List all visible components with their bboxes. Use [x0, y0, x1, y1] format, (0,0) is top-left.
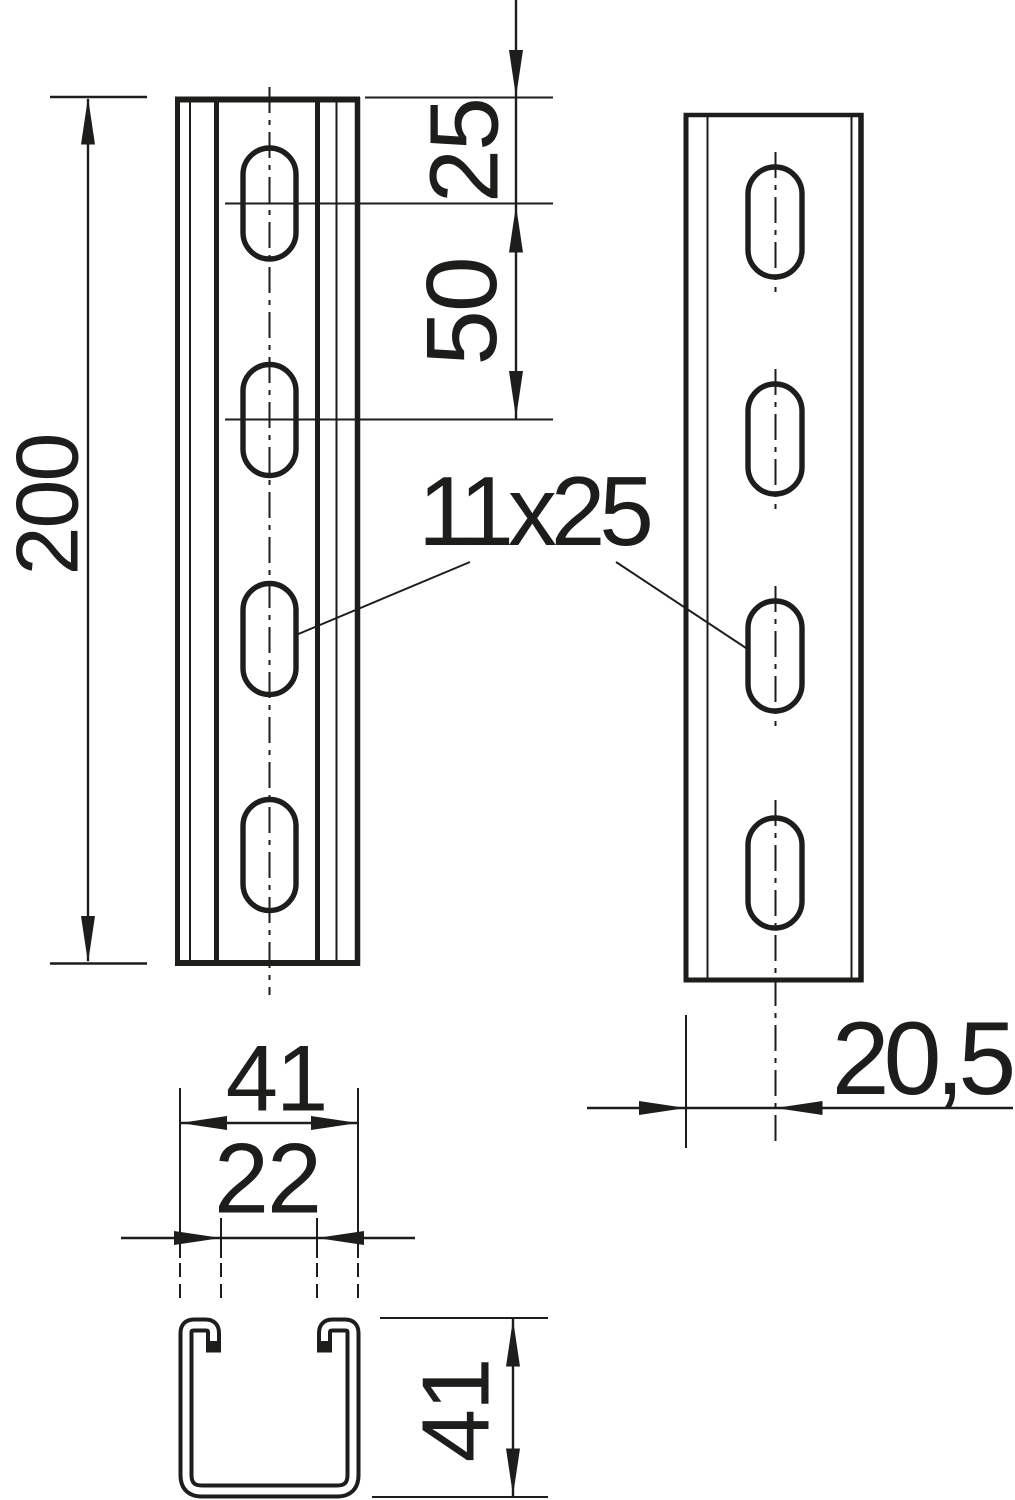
dim-text-slot-size: 11x25: [418, 456, 650, 566]
dim-text-hole-pitch: 50: [406, 258, 518, 365]
arrowhead-left: [776, 1101, 823, 1115]
arrowhead-up: [81, 98, 95, 145]
front-view: [175, 87, 360, 995]
section-lip-tip-right: [317, 1341, 332, 1353]
label-slot-size: [296, 562, 749, 650]
section-lip-tip-left: [206, 1341, 221, 1353]
arrowhead-down: [509, 371, 523, 418]
dim-text-first-hole-offset: 25: [410, 99, 519, 203]
arrowhead-up: [506, 1320, 520, 1367]
arrowhead-up: [509, 206, 523, 253]
technical-drawing-sheet: 200 25 50 11x25 41 22 41 20,5: [0, 0, 1015, 1500]
leader-line: [616, 562, 749, 650]
dim-text-profile-height: 41: [403, 1360, 510, 1463]
dim-text-profile-width: 41: [226, 1026, 327, 1131]
dim-text-rail-length: 200: [0, 435, 97, 576]
section-view: [186, 1325, 353, 1491]
arrowhead-down: [81, 916, 95, 963]
rear-view: [684, 113, 864, 1143]
arrowhead-down: [509, 50, 523, 97]
dim-text-opening-width: 22: [214, 1123, 320, 1234]
arrowhead-left: [317, 1231, 364, 1245]
strut-channel-drawing: 200 25 50 11x25 41 22 41 20,5: [0, 0, 1015, 1500]
leader-line: [296, 562, 470, 635]
arrowhead-right: [639, 1101, 686, 1115]
dim-text-center-offset: 20,5: [832, 1001, 1013, 1117]
